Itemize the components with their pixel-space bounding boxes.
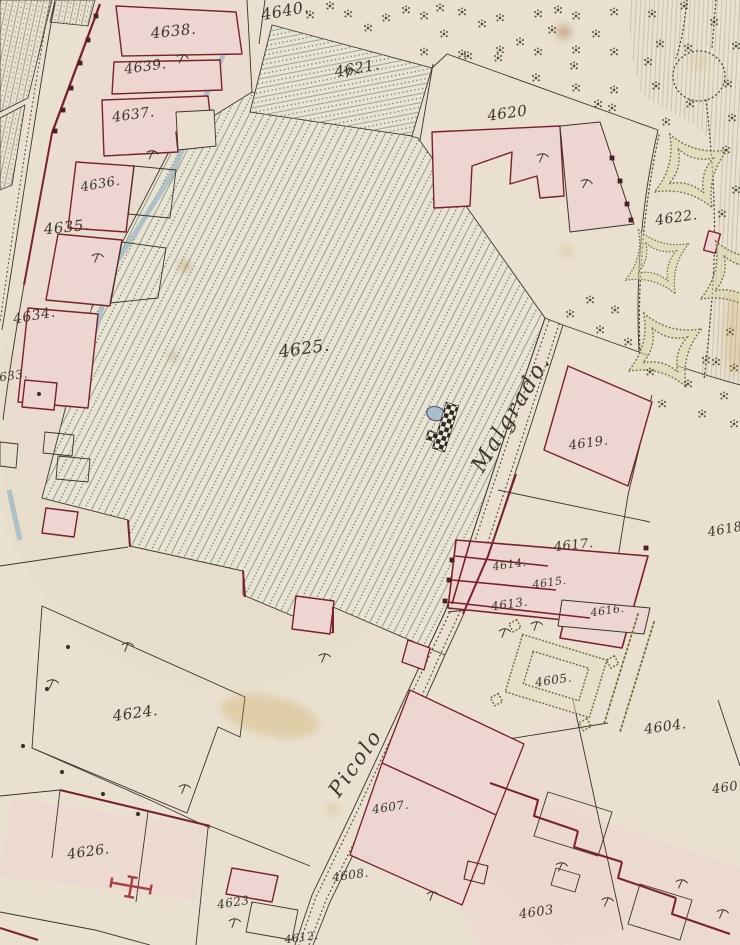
map-sheet: 4640.4638.4639.4637.4636.4635.4634.4633.… <box>0 0 740 945</box>
cadastral-map: 4640.4638.4639.4637.4636.4635.4634.4633.… <box>0 0 740 945</box>
building-field-edge <box>292 596 334 634</box>
building-small <box>42 508 78 537</box>
building-4635 <box>46 234 122 306</box>
courtyard <box>176 110 216 150</box>
